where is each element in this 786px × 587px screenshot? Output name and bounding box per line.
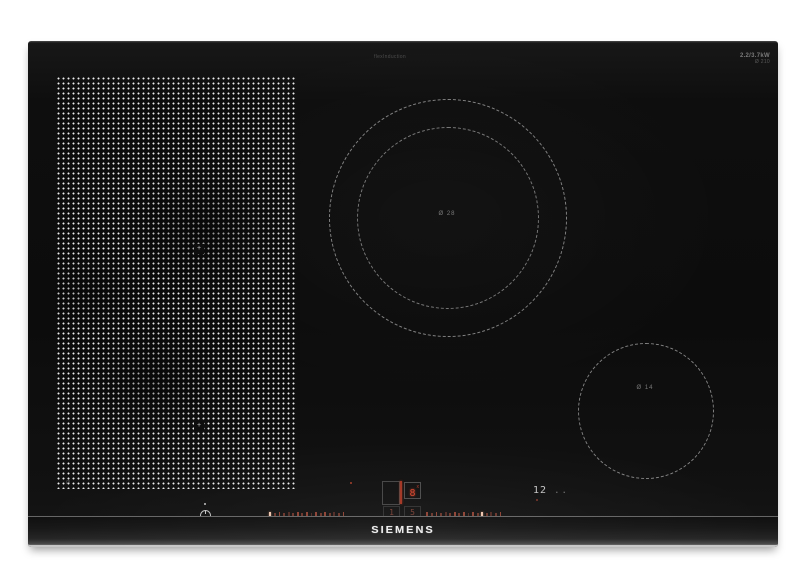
- small-zone-ring: [578, 343, 714, 479]
- top-right-print: 2.2/3.7kW Ø 210: [740, 53, 770, 65]
- large-zone-center-marking: Ø 28: [422, 211, 472, 217]
- red-indicator-speck: [350, 482, 352, 484]
- timer-value: 12: [533, 485, 547, 496]
- flex-induction-zone: + +: [55, 75, 295, 489]
- product-photo: flexInduction 2.2/3.7kW Ø 210 + + Ø Ø 28…: [0, 0, 786, 587]
- power-level-suffix: x: [417, 484, 420, 490]
- flex-zone-marker-top: +: [194, 244, 204, 254]
- timer-dots: ..: [554, 486, 569, 496]
- timer-display: 12 ..: [533, 485, 569, 496]
- flex-zone-marker-bottom: +: [194, 421, 204, 431]
- display-window-frame: [382, 481, 400, 505]
- power-indicator-dot: [204, 503, 206, 505]
- power-level-value: 8: [409, 488, 415, 499]
- timer-indicator-speck: [536, 499, 538, 501]
- top-center-print: flexInduction: [355, 54, 425, 60]
- induction-hob: flexInduction 2.2/3.7kW Ø 210 + + Ø Ø 28…: [28, 41, 778, 547]
- display-red-divider: [400, 481, 402, 504]
- flex-zone-reflection: [55, 75, 295, 489]
- brand-logo: SIEMENS: [28, 524, 778, 535]
- top-right-print-line2: Ø 210: [740, 59, 770, 65]
- hob-top-edge: [28, 41, 778, 43]
- flex-zone-corner-marking: Ø: [66, 480, 70, 486]
- small-zone-center-marking: Ø 14: [620, 385, 670, 391]
- power-level-display: 8 x: [404, 482, 421, 499]
- large-zone-inner-ring: [357, 127, 539, 309]
